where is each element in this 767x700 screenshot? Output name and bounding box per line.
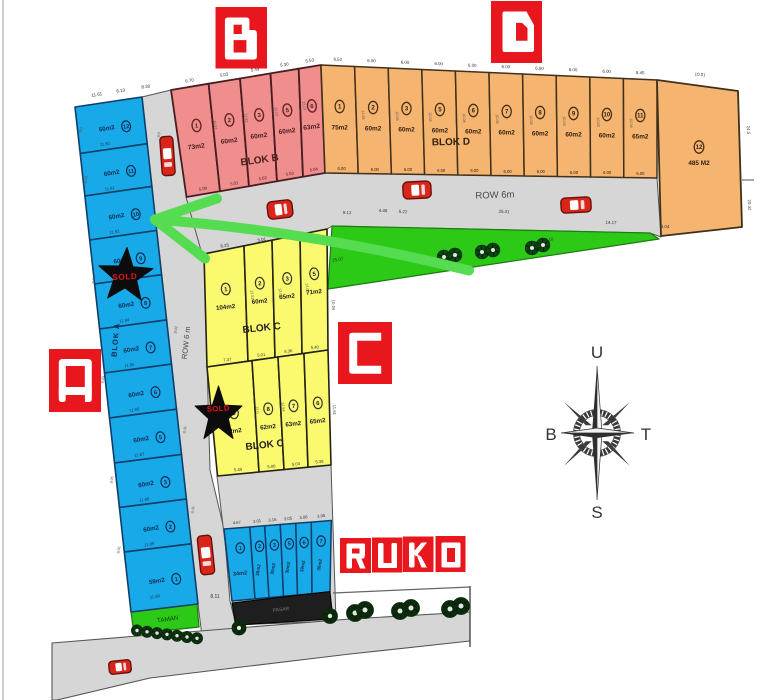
- svg-text:7: 7: [320, 539, 323, 545]
- svg-text:12.0: 12.0: [255, 406, 260, 414]
- svg-text:11.06: 11.06: [361, 110, 365, 119]
- svg-text:6.00: 6.00: [603, 170, 612, 175]
- svg-text:10.04: 10.04: [529, 115, 533, 125]
- svg-text:5.36: 5.36: [284, 348, 293, 354]
- svg-text:BLOK D: BLOK D: [432, 137, 471, 149]
- svg-text:6.00: 6.00: [401, 60, 410, 65]
- svg-text:14.17: 14.17: [605, 220, 617, 225]
- svg-text:5.40: 5.40: [310, 344, 319, 350]
- svg-text:485 M2: 485 M2: [688, 160, 710, 167]
- svg-text:60m2: 60m2: [599, 133, 616, 140]
- svg-text:11.61: 11.61: [332, 405, 338, 416]
- svg-text:10.04: 10.04: [428, 112, 432, 122]
- svg-text:6.00: 6.00: [470, 168, 479, 173]
- svg-text:75m2: 75m2: [332, 125, 349, 132]
- svg-text:B: B: [545, 425, 556, 444]
- svg-text:9.13: 9.13: [343, 210, 352, 215]
- svg-text:60m2: 60m2: [365, 126, 382, 133]
- svg-text:3.05: 3.05: [284, 515, 293, 521]
- svg-text:2: 2: [258, 544, 261, 550]
- svg-text:6.00: 6.00: [434, 61, 443, 66]
- svg-text:12.0: 12.0: [278, 288, 283, 296]
- svg-text:10.04: 10.04: [596, 117, 600, 127]
- svg-text:6: 6: [303, 541, 306, 547]
- svg-text:6.00: 6.00: [569, 67, 578, 72]
- svg-text:1: 1: [239, 546, 242, 552]
- svg-text:3.01: 3.01: [253, 518, 262, 524]
- svg-text:3.08: 3.08: [299, 514, 308, 520]
- svg-text:20.32: 20.32: [747, 199, 753, 211]
- svg-text:6.00: 6.00: [367, 58, 376, 63]
- svg-text:SOLD: SOLD: [207, 403, 231, 413]
- svg-text:6.52: 6.52: [333, 57, 342, 62]
- svg-text:24.5: 24.5: [746, 126, 751, 135]
- svg-text:6.00: 6.00: [371, 167, 380, 172]
- svg-text:60m2: 60m2: [532, 131, 549, 138]
- svg-text:5.01: 5.01: [257, 352, 266, 358]
- svg-text:5.49: 5.49: [234, 467, 243, 473]
- svg-text:60m2: 60m2: [465, 129, 482, 136]
- svg-text:10.01: 10.01: [694, 72, 706, 78]
- svg-text:12: 12: [123, 124, 130, 131]
- svg-text:6.00: 6.00: [501, 64, 510, 69]
- svg-text:6.00: 6.00: [636, 171, 645, 176]
- svg-text:10.04: 10.04: [395, 111, 399, 121]
- svg-text:5.39: 5.39: [315, 459, 324, 465]
- svg-text:10: 10: [132, 212, 139, 219]
- svg-text:8.11: 8.11: [210, 594, 220, 600]
- svg-text:60m2: 60m2: [432, 128, 449, 135]
- svg-text:10.04: 10.04: [562, 116, 566, 126]
- svg-text:ROW 6m: ROW 6m: [475, 189, 514, 201]
- svg-text:12: 12: [696, 145, 703, 151]
- svg-text:65m2: 65m2: [632, 134, 649, 141]
- svg-text:4.48: 4.48: [379, 208, 388, 213]
- svg-text:5.00: 5.00: [267, 463, 276, 469]
- svg-text:6.00: 6.00: [535, 66, 544, 71]
- svg-text:60m2: 60m2: [565, 132, 582, 139]
- svg-text:3.16: 3.16: [268, 517, 277, 523]
- svg-text:3.05: 3.05: [317, 513, 326, 519]
- svg-text:T: T: [641, 425, 651, 444]
- svg-text:6.00: 6.00: [602, 69, 611, 74]
- svg-text:25.01: 25.01: [498, 209, 510, 214]
- svg-text:9.0: 9.0: [157, 132, 162, 138]
- svg-text:60m2: 60m2: [499, 130, 516, 137]
- svg-text:5.03: 5.03: [292, 461, 301, 467]
- svg-text:6.00: 6.00: [504, 169, 513, 174]
- svg-text:10.04: 10.04: [495, 114, 499, 124]
- svg-text:U: U: [591, 343, 603, 362]
- svg-text:3: 3: [273, 543, 276, 549]
- svg-text:6.00: 6.00: [537, 169, 546, 174]
- svg-text:11: 11: [637, 114, 644, 120]
- svg-text:5: 5: [288, 542, 291, 548]
- svg-text:6.00: 6.00: [437, 168, 446, 173]
- svg-text:SOLD: SOLD: [112, 272, 138, 282]
- svg-text:3.04: 3.04: [661, 224, 670, 229]
- svg-text:6.00: 6.00: [468, 63, 477, 68]
- svg-text:6.00: 6.00: [338, 166, 347, 171]
- svg-text:4.67: 4.67: [232, 520, 241, 526]
- svg-text:6.00: 6.00: [570, 170, 579, 175]
- svg-text:7.37: 7.37: [223, 357, 232, 363]
- svg-text:10.04: 10.04: [629, 118, 633, 128]
- svg-text:60m2: 60m2: [398, 127, 415, 134]
- svg-text:8.45: 8.45: [636, 70, 645, 75]
- svg-text:S: S: [591, 503, 602, 522]
- svg-text:10.04: 10.04: [331, 300, 337, 311]
- svg-text:5.22: 5.22: [399, 209, 408, 214]
- svg-text:6.00: 6.00: [404, 167, 413, 172]
- svg-text:10.04: 10.04: [462, 113, 466, 123]
- svg-text:10: 10: [604, 113, 611, 119]
- svg-text:9.0: 9.0: [79, 127, 84, 133]
